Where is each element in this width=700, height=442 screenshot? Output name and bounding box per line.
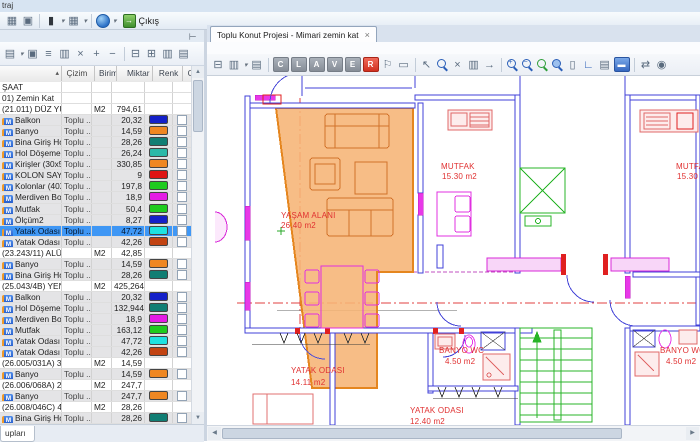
- table-row[interactable]: MMerdiven BoşluğuToplu ...18,9: [0, 192, 191, 203]
- visibility-checkbox[interactable]: [177, 292, 187, 302]
- paste-icon[interactable]: ▤: [250, 58, 264, 72]
- book-icon[interactable]: ▮: [44, 14, 58, 28]
- pages-icon[interactable]: ▥: [467, 58, 481, 72]
- toolbar-separator: [91, 14, 92, 28]
- measurement-icon: M: [2, 129, 13, 136]
- svg-text:MUTFAK: MUTFAK: [441, 162, 475, 171]
- toolbar-separator: [501, 58, 502, 72]
- measurement-icon: M: [2, 140, 13, 147]
- table-row[interactable]: MYatak OdasıToplu ...47,72: [0, 336, 191, 347]
- visibility-checkbox[interactable]: [177, 325, 187, 335]
- measurement-icon: M: [2, 372, 13, 379]
- bed: [253, 394, 313, 424]
- svg-text:MUTFAK: MUTFAK: [676, 162, 700, 171]
- kitchen-counters: [448, 110, 698, 132]
- remove-icon[interactable]: −: [106, 47, 120, 61]
- table-row[interactable]: MBanyoToplu ...14,59: [0, 369, 191, 380]
- measurement-icon: M: [2, 207, 13, 214]
- zoom-selection-icon[interactable]: [551, 58, 564, 71]
- visibility-checkbox[interactable]: [177, 126, 187, 136]
- help-globe-icon[interactable]: [96, 14, 110, 28]
- color-swatch[interactable]: [149, 126, 168, 135]
- frame-select-icon[interactable]: ▣: [26, 47, 40, 61]
- grid-header: ▴ Çizim Birim Miktar Renk Gö...: [0, 66, 191, 83]
- scroll-thumb[interactable]: [193, 80, 203, 132]
- document-tab-title: Toplu Konut Projesi - Mimari zemin kat: [217, 30, 359, 40]
- scroll-down-icon[interactable]: ▼: [192, 412, 204, 424]
- table-row[interactable]: MMerdiven BoşluğuToplu ...18,9: [0, 314, 191, 325]
- color-swatch[interactable]: [149, 215, 168, 224]
- flag-icon[interactable]: ⚐: [381, 58, 395, 72]
- svg-text:14.11 m2: 14.11 m2: [291, 378, 326, 387]
- panel-bottom-tabs: upları: [0, 424, 204, 442]
- table-row[interactable]: MBina Giriş HolüToplu ...28,26: [0, 270, 191, 281]
- landing-sills: [487, 258, 669, 271]
- ruler-icon[interactable]: ∟: [582, 58, 596, 72]
- table-row[interactable]: (25.043/4B) YENİ ...M2425,264: [0, 281, 191, 292]
- color-swatch[interactable]: [149, 204, 168, 213]
- table-row[interactable]: MYatak OdasıToplu ...47,72: [0, 226, 191, 237]
- select-icon[interactable]: ↖: [420, 58, 434, 72]
- table-row[interactable]: MBina Giriş HolüToplu ...28,26: [0, 413, 191, 424]
- zoom-in-icon[interactable]: +: [506, 58, 519, 71]
- color-swatch[interactable]: [149, 237, 168, 246]
- frame-icon[interactable]: ▣: [21, 14, 35, 28]
- measurement-icon: M: [2, 184, 13, 191]
- dropdown-caret-icon[interactable]: ▾: [84, 17, 88, 25]
- measurement-icon: M: [2, 394, 13, 401]
- drawing-toolbar: ⊟▥▾▤CLAVER⚐▭↖×▥→+−▯∟▤▬⇄◉: [207, 54, 700, 76]
- visibility-checkbox[interactable]: [177, 226, 187, 236]
- visibility-checkbox[interactable]: [177, 303, 187, 313]
- add-icon[interactable]: +: [90, 47, 104, 61]
- pages2-icon[interactable]: ▤: [598, 58, 612, 72]
- svg-text:YATAK ODASI: YATAK ODASI: [291, 366, 345, 375]
- color-swatch[interactable]: [149, 292, 168, 301]
- tab-close-icon[interactable]: ×: [365, 31, 370, 40]
- svg-text:12.40 m2: 12.40 m2: [410, 417, 445, 425]
- column-header-name[interactable]: ▴: [0, 66, 62, 81]
- svg-text:15.30 m2: 15.30 m2: [677, 172, 700, 181]
- table-row[interactable]: MYatak Odası 2Toplu ...42,26: [0, 237, 191, 248]
- dropdown-caret-icon[interactable]: ▾: [244, 61, 248, 69]
- column-header-cizim[interactable]: Çizim: [65, 66, 95, 81]
- svg-text:26.40 m2: 26.40 m2: [281, 221, 316, 230]
- zoom-out-icon[interactable]: −: [521, 58, 534, 71]
- table-row[interactable]: MMutfakToplu ...50,4: [0, 204, 191, 215]
- paste-page-icon[interactable]: ▤: [3, 47, 17, 61]
- visibility-checkbox[interactable]: [177, 148, 187, 158]
- toolbar-separator: [124, 47, 125, 61]
- swap-icon[interactable]: ⇄: [639, 58, 653, 72]
- toolbar-separator: [268, 58, 269, 72]
- upper-floor-wall-stubs: [302, 76, 625, 96]
- color-swatch[interactable]: [149, 192, 168, 201]
- print-icon[interactable]: ⊟: [211, 58, 225, 72]
- visibility-checkbox[interactable]: [177, 270, 187, 280]
- go-icon[interactable]: →: [483, 58, 497, 72]
- canvas-horizontal-scrollbar[interactable]: ◀ ▶: [207, 425, 700, 441]
- visibility-checkbox[interactable]: [177, 314, 187, 324]
- clipboard-icon[interactable]: ▤: [177, 47, 191, 61]
- document-tab[interactable]: Toplu Konut Projesi - Mimari zemin kat ×: [210, 26, 377, 43]
- visibility-checkbox[interactable]: [177, 259, 187, 269]
- grid-vertical-scrollbar[interactable]: ▲ ▼: [191, 66, 204, 424]
- print-icon[interactable]: ⊟: [129, 47, 143, 61]
- copy-icon[interactable]: ▥: [227, 58, 241, 72]
- measurement-icon: M: [2, 240, 13, 247]
- measurement-icon: M: [2, 151, 13, 158]
- color-swatch[interactable]: [149, 391, 168, 400]
- visibility-checkbox[interactable]: [177, 159, 187, 169]
- column-header-miktar[interactable]: Miktar: [120, 66, 153, 81]
- color-swatch[interactable]: [149, 148, 168, 157]
- svg-text:YATAK ODASI: YATAK ODASI: [410, 406, 464, 415]
- radiator: [215, 212, 227, 242]
- copy-pages-icon[interactable]: ▥: [161, 47, 175, 61]
- measurement-icon: M: [2, 317, 13, 324]
- bottom-tab-poz-gruplari[interactable]: upları: [0, 426, 35, 442]
- visibility-icon[interactable]: ◉: [655, 58, 669, 72]
- visibility-checkbox[interactable]: [177, 391, 187, 401]
- measurements-toolbar: ▤▾▣≡▥×+−⊟⊞▥▤: [0, 42, 204, 66]
- document-tabbar: Toplu Konut Projesi - Mimari zemin kat ×: [207, 25, 700, 43]
- print-preview-icon[interactable]: ⊞: [145, 47, 159, 61]
- toolbar-separator: [634, 58, 635, 72]
- marquee-icon[interactable]: ▭: [397, 58, 411, 72]
- list-view-icon[interactable]: ≡: [42, 47, 56, 61]
- measurement-icon: M: [2, 195, 13, 202]
- dropdown-caret-icon[interactable]: ▾: [113, 17, 117, 25]
- layer-c-button[interactable]: C: [273, 57, 289, 72]
- measurement-icon: M: [2, 295, 13, 302]
- delete-icon[interactable]: ×: [74, 47, 88, 61]
- table-row[interactable]: MBina Giriş HolüToplu ...28,26: [0, 137, 191, 148]
- delete-icon[interactable]: ×: [451, 58, 465, 72]
- autohide-pin-icon[interactable]: ⊥: [187, 33, 198, 41]
- sort-asc-icon: ▴: [55, 66, 59, 81]
- color-swatch[interactable]: [149, 181, 168, 190]
- table-row[interactable]: MKolonlar (40X60)Toplu ...197,8: [0, 181, 191, 192]
- window-title: traj: [2, 1, 13, 10]
- zoom-extents-icon[interactable]: [536, 58, 549, 71]
- color-swatch[interactable]: [149, 413, 168, 422]
- copy-icon[interactable]: ▥: [58, 47, 72, 61]
- window-icon[interactable]: ▦: [5, 14, 19, 28]
- visibility-checkbox[interactable]: [177, 170, 187, 180]
- color-swatch[interactable]: [149, 369, 168, 378]
- color-swatch[interactable]: [149, 325, 168, 334]
- table-row[interactable]: MBanyoToplu ...14,59: [0, 126, 191, 137]
- table-row[interactable]: (23.243/11) ALÜM...M242,85: [0, 248, 191, 259]
- cad-canvas[interactable]: YAŞAM ALANI 26.40 m2 MUTFAK 15.30 m2 MUT…: [207, 76, 700, 425]
- measurement-icon: M: [2, 273, 13, 280]
- color-swatch[interactable]: [149, 115, 168, 124]
- visibility-checkbox[interactable]: [177, 137, 187, 147]
- measurement-icon: M: [2, 416, 13, 423]
- layer-l-button[interactable]: L: [291, 57, 307, 72]
- color-swatch[interactable]: [149, 259, 168, 268]
- table-row[interactable]: MÖlçüm2Toplu ...8,27: [0, 215, 191, 226]
- layer-e-button[interactable]: E: [345, 57, 361, 72]
- color-swatch[interactable]: [149, 159, 168, 168]
- table-row[interactable]: MKOLON SAYILARIToplu ...9: [0, 170, 191, 181]
- measurement-icon: M: [2, 306, 13, 313]
- visibility-checkbox[interactable]: [177, 369, 187, 379]
- sheet-icon[interactable]: ▯: [566, 58, 580, 72]
- visibility-checkbox[interactable]: [177, 237, 187, 247]
- scroll-right-icon[interactable]: ▶: [686, 427, 699, 440]
- visibility-checkbox[interactable]: [177, 215, 187, 225]
- table-row[interactable]: MKirişler (30x50)Toplu ...330,85: [0, 159, 191, 170]
- color-swatch[interactable]: [149, 226, 168, 235]
- kitchen-radiator: [437, 245, 443, 268]
- exit-icon: →: [123, 14, 136, 28]
- color-swatch[interactable]: [149, 336, 168, 345]
- measurement-icon: M: [2, 229, 13, 236]
- svg-text:BANYO WC: BANYO WC: [660, 346, 700, 355]
- table-row[interactable]: (26.006/068A) 20...M2247,7: [0, 380, 191, 391]
- table-row[interactable]: (26.005/031A) 33...M214,59: [0, 358, 191, 369]
- zoom-window-icon[interactable]: [436, 58, 449, 71]
- visibility-checkbox[interactable]: [177, 347, 187, 357]
- measurement-icon: M: [2, 350, 13, 357]
- dropdown-caret-icon[interactable]: ▾: [20, 50, 24, 58]
- scroll-left-icon[interactable]: ◀: [208, 427, 221, 440]
- table-row[interactable]: MBanyoToplu ...247,7: [0, 391, 191, 402]
- dropdown-caret-icon[interactable]: ▾: [61, 17, 65, 25]
- table-row[interactable]: 01) Zemin Kat: [0, 93, 191, 104]
- visibility-checkbox[interactable]: [177, 336, 187, 346]
- table-icon[interactable]: ▦: [67, 14, 81, 28]
- svg-text:4.50 m2: 4.50 m2: [666, 357, 697, 366]
- svg-text:BANYO WC: BANYO WC: [439, 346, 484, 355]
- table-row[interactable]: MMutfakToplu ...163,12: [0, 325, 191, 336]
- visibility-checkbox[interactable]: [177, 413, 187, 423]
- visibility-checkbox[interactable]: [177, 115, 187, 125]
- color-swatch[interactable]: [149, 170, 168, 179]
- visibility-checkbox[interactable]: [177, 192, 187, 202]
- measurement-icon: M: [2, 328, 13, 335]
- measurements-panel: ⊥ ▤▾▣≡▥×+−⊟⊞▥▤ ▴ Çizim Birim Miktar Renk…: [0, 30, 204, 441]
- exit-label: Çıkış: [139, 16, 160, 26]
- table-row[interactable]: MBalkonToplu ...20,32: [0, 115, 191, 126]
- measurement-icon: M: [2, 118, 13, 125]
- toolbar-separator: [415, 58, 416, 72]
- svg-text:YAŞAM ALANI: YAŞAM ALANI: [281, 211, 336, 220]
- layer-r-button[interactable]: R: [363, 57, 379, 72]
- toolbar-separator: [39, 14, 40, 28]
- table-row[interactable]: (26.008/046C) 40...M228,26: [0, 402, 191, 413]
- table-row[interactable]: (21.011) DÜZ YÜZ...M2794,61: [0, 104, 191, 115]
- column-header-renk[interactable]: Renk: [155, 66, 183, 81]
- table-row[interactable]: MBalkonToplu ...20,32: [0, 292, 191, 303]
- measurement-icon: M: [2, 218, 13, 225]
- layer-v-button[interactable]: V: [327, 57, 343, 72]
- table-row[interactable]: ŞAAT: [0, 82, 191, 93]
- stairs: [520, 168, 592, 422]
- color-swatch[interactable]: [149, 137, 168, 146]
- measurement-icon: M: [2, 173, 13, 180]
- color-swatch[interactable]: [149, 347, 168, 356]
- scroll-thumb[interactable]: [222, 428, 622, 439]
- color-swatch[interactable]: [149, 303, 168, 312]
- table-row[interactable]: MHol DöşemeToplu ...26,24: [0, 148, 191, 159]
- scroll-up-icon[interactable]: ▲: [192, 66, 204, 78]
- table-row[interactable]: MYatak Odası 2Toplu ...42,26: [0, 347, 191, 358]
- color-swatch[interactable]: [149, 270, 168, 279]
- exit-button[interactable]: → Çıkış: [120, 13, 166, 29]
- layer-a-button[interactable]: A: [309, 57, 325, 72]
- measurement-icon: M: [2, 162, 13, 169]
- column-header-birim[interactable]: Birim: [97, 66, 117, 81]
- grid-rows: ŞAAT01) Zemin Kat(21.011) DÜZ YÜZ...M279…: [0, 82, 191, 424]
- visibility-checkbox[interactable]: [177, 181, 187, 191]
- visibility-checkbox[interactable]: [177, 204, 187, 214]
- table-row[interactable]: MBanyoToplu ...14,59: [0, 259, 191, 270]
- svg-text:4.50 m2: 4.50 m2: [445, 357, 476, 366]
- drawing-panel: Toplu Konut Projesi - Mimari zemin kat ×…: [207, 25, 700, 441]
- viewport-icon[interactable]: ▬: [614, 57, 630, 72]
- highlight-region-yasam-alani[interactable]: [276, 108, 413, 388]
- table-row[interactable]: MHol DöşemeToplu ...132,944: [0, 303, 191, 314]
- svg-text:15.30 m2: 15.30 m2: [442, 172, 477, 181]
- color-swatch[interactable]: [149, 314, 168, 323]
- measurement-icon: M: [2, 339, 13, 346]
- measurement-icon: M: [2, 262, 13, 269]
